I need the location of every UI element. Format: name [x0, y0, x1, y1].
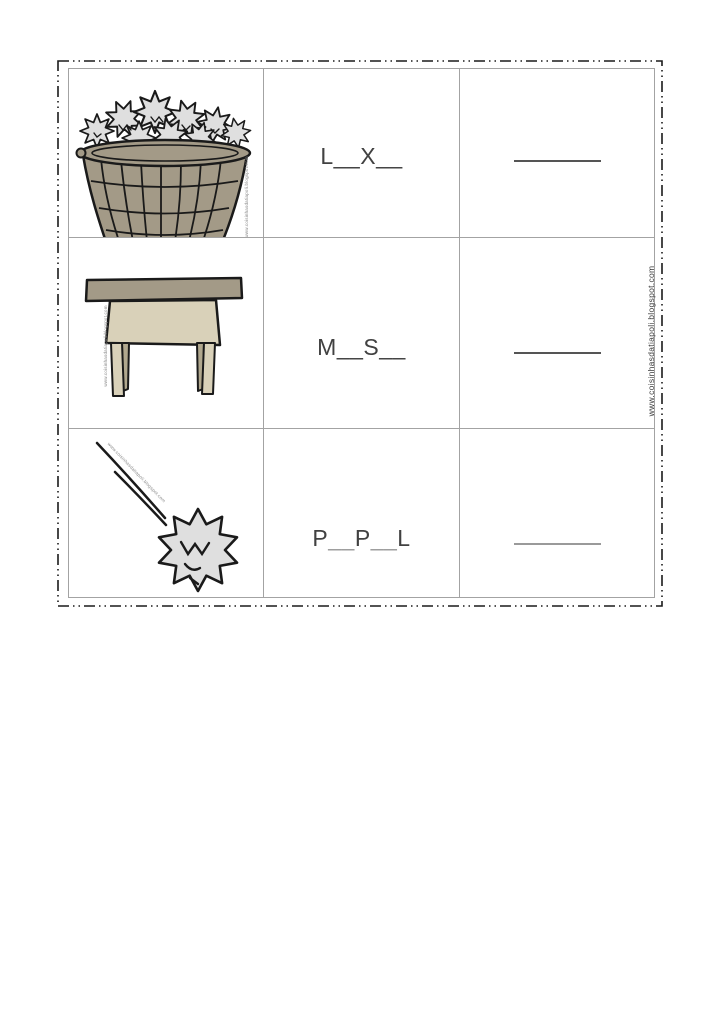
- wastebasket-image: [69, 69, 264, 238]
- cell-row1-word: L__X__: [264, 69, 460, 238]
- word-with-missing-letters: L__X__: [320, 137, 402, 170]
- cell-row2-answer: [460, 238, 655, 429]
- watermark-table: www.coisinhasdatiapoli.blogspot.com: [104, 305, 109, 386]
- cell-row3-answer: [460, 429, 655, 597]
- crumpled-paper-image: [69, 429, 264, 597]
- cell-row2-word: M__S__: [264, 238, 460, 429]
- cell-row1-answer: [460, 69, 655, 238]
- answer-blank-line: [514, 352, 601, 354]
- cell-row3-word: P__P__L: [264, 429, 460, 597]
- watermark-right-margin: www.coisinhasdatiapoli.blogspot.com: [646, 266, 656, 417]
- cell-row3-image: www.coisinhasdatiapoli.blogspot.com: [69, 429, 264, 597]
- table-image: [69, 238, 264, 429]
- watermark-basket: www.coisinhasdatiapoli.blogspot.com: [245, 156, 250, 237]
- word-with-missing-letters: M__S__: [317, 305, 406, 361]
- answer-blank-line: [514, 543, 601, 545]
- cell-row2-image: www.coisinhasdatiapoli.blogspot.com: [69, 238, 264, 429]
- word-with-missing-letters: P__P__L: [312, 475, 410, 552]
- worksheet-page: { "page": { "background": "#ffffff", "so…: [0, 0, 723, 1024]
- cell-row1-image: www.coisinhasdatiapoli.blogspot.com: [69, 69, 264, 238]
- answer-blank-line: [514, 160, 601, 162]
- worksheet-grid: www.coisinhasdatiapoli.blogspot.com L__X…: [68, 68, 655, 598]
